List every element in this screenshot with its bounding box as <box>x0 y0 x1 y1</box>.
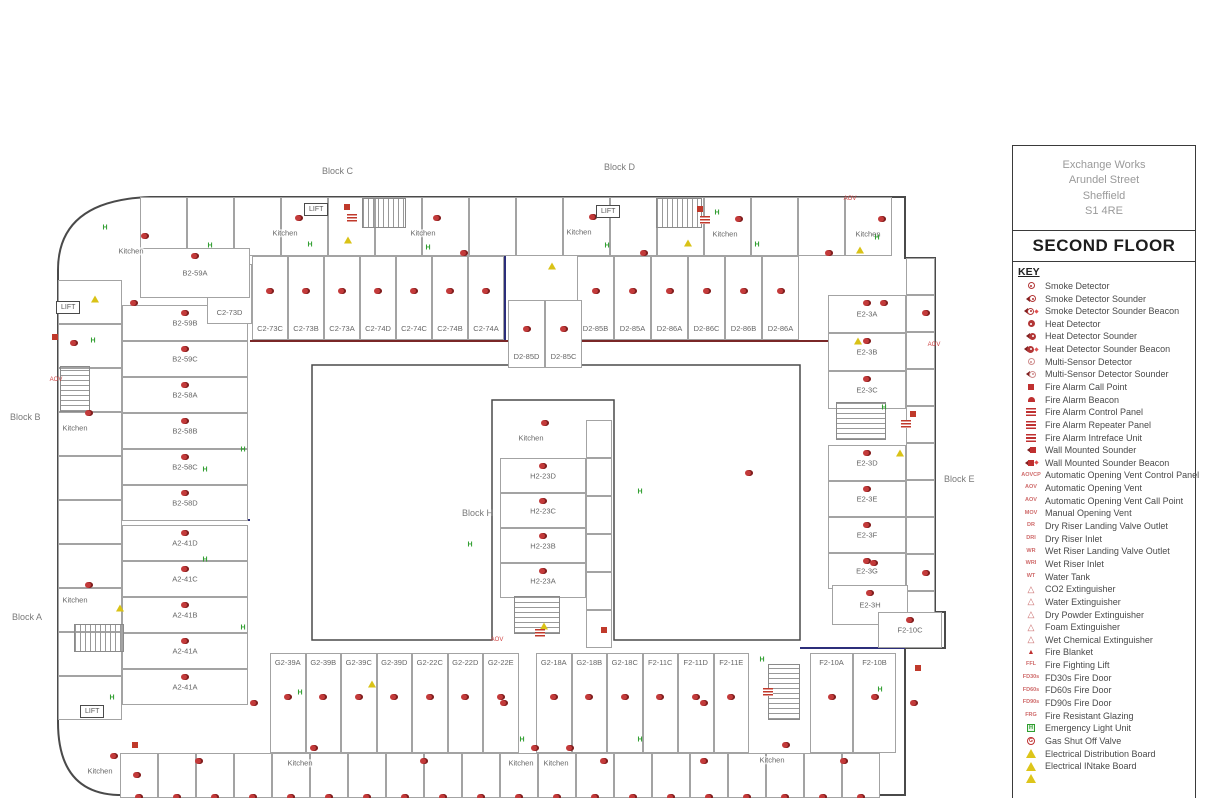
room-F2-11E: F2-11E <box>714 653 750 753</box>
electrical-board-icon <box>548 263 556 270</box>
kitchen-label: Kitchen <box>272 229 297 237</box>
call-point-icon <box>915 665 921 671</box>
kitchen-label: Kitchen <box>712 230 737 238</box>
sounder-icon <box>692 694 700 700</box>
legend-item: DRIDry Riser Inlet <box>1017 532 1195 545</box>
emergency-light-icon: H <box>102 225 107 232</box>
legend-item-label: Foam Extinguisher <box>1045 622 1120 632</box>
sounder-icon <box>433 215 441 221</box>
sounder-icon <box>700 700 708 706</box>
room-label: H2-23A <box>529 577 556 585</box>
electrical-board-icon <box>856 247 864 254</box>
room-label: A2-41D <box>171 539 198 547</box>
room-H2-23B: H2-23B <box>500 528 586 563</box>
sounder-icon <box>110 753 118 759</box>
room-label: D2-85A <box>619 325 646 333</box>
sounder-icon <box>390 694 398 700</box>
sounder-icon <box>863 376 871 382</box>
legend-item: Smoke Detector Sounder <box>1017 292 1195 305</box>
sounder-icon <box>667 794 675 798</box>
room-label: G2-18A <box>540 659 568 667</box>
room-E2-3G: E2-3G <box>828 553 906 589</box>
room-C2-73C: C2-73C <box>252 256 288 340</box>
sounder-icon <box>880 300 888 306</box>
room-label: C2-74A <box>472 325 499 333</box>
lift-label: LIFT <box>80 705 104 718</box>
stairs <box>656 198 702 228</box>
legend-item: FRGFire Resistant Glazing <box>1017 709 1195 722</box>
room-C2-74B: C2-74B <box>432 256 468 340</box>
room-label: E2-3A <box>856 310 879 318</box>
legend-item: FD30sFD30s Fire Door <box>1017 671 1195 684</box>
sounder-icon <box>705 794 713 798</box>
room-label: E2-3D <box>855 459 878 467</box>
room-label: C2-73B <box>292 325 319 333</box>
room-label: D2-85C <box>550 353 578 361</box>
room-label: D2-86C <box>693 325 721 333</box>
room-D2-85C: D2-85C <box>545 300 582 368</box>
sounder-icon <box>743 794 751 798</box>
legend-item-label: Fire Alarm Intreface Unit <box>1045 433 1142 443</box>
address-line: Exchange Works <box>1017 158 1191 173</box>
sounder-icon <box>302 288 310 294</box>
legend-item: Fire Alarm Intreface Unit <box>1017 431 1195 444</box>
room-cell <box>586 534 612 572</box>
legend-item: Wall Mounted Sounder Beacon <box>1017 457 1195 470</box>
sounder-icon <box>863 486 871 492</box>
legend-item-label: Smoke Detector Sounder <box>1045 294 1146 304</box>
legend-gas-icon: G <box>1017 737 1045 745</box>
room-E2-3E: E2-3E <box>828 481 906 517</box>
kitchen-label: Kitchen <box>543 759 568 767</box>
legend-list: Smoke DetectorSmoke Detector SounderSmok… <box>1013 280 1195 786</box>
sounder-icon <box>250 700 258 706</box>
emergency-light-icon: H <box>881 405 886 412</box>
room-B2-59A: B2-59A <box>140 248 250 298</box>
kitchen-label: Kitchen <box>287 759 312 767</box>
room-cell <box>586 572 612 610</box>
legend-item-label: Automatic Opening Vent Control Panel <box>1045 470 1199 480</box>
room-label: C2-73C <box>256 325 284 333</box>
kitchen-label: Kitchen <box>62 424 87 432</box>
room-F2-11C: F2-11C <box>643 653 679 753</box>
room-B2-59C: B2-59C <box>122 341 248 377</box>
kitchen-label: Kitchen <box>87 767 112 775</box>
legend-text-icon: DR <box>1017 523 1045 529</box>
room-label: F2-10B <box>861 659 888 667</box>
room-label: G2-18B <box>575 659 603 667</box>
room-cell <box>704 197 751 256</box>
room-label: B2-58D <box>171 499 198 507</box>
legend-item-label: Multi-Sensor Detector <box>1045 357 1132 367</box>
lift-label: LIFT <box>304 203 328 216</box>
room-label: G2-22E <box>487 659 515 667</box>
legend-item: AOVAutomatic Opening Vent <box>1017 482 1195 495</box>
room-cell <box>804 753 842 798</box>
room-label: G2-22C <box>416 659 444 667</box>
legend-item: △Dry Powder Extinguisher <box>1017 608 1195 621</box>
sounder-icon <box>181 454 189 460</box>
sounder-icon <box>249 794 257 798</box>
kitchen-label: Kitchen <box>759 756 784 764</box>
room-label: A2-41C <box>171 575 198 583</box>
legend-smoke-icon <box>1017 282 1045 289</box>
room-label: F2-10A <box>818 659 845 667</box>
emergency-light-icon: H <box>90 338 95 345</box>
room-label: C2-73A <box>328 325 355 333</box>
sounder-icon <box>325 794 333 798</box>
room-D2-85D: D2-85D <box>508 300 545 368</box>
sounder-icon <box>410 288 418 294</box>
sounder-icon <box>840 758 848 764</box>
room-label: B2-59B <box>171 319 198 327</box>
legend-item: HEmergency Light Unit <box>1017 722 1195 735</box>
legend-item: FD90sFD90s Fire Door <box>1017 697 1195 710</box>
key-heading: KEY <box>1013 262 1195 280</box>
sounder-icon <box>550 694 558 700</box>
sounder-icon <box>735 216 743 222</box>
legend-item: FFLFire Fighting Lift <box>1017 659 1195 672</box>
sounder-icon <box>541 420 549 426</box>
room-label: G2-39C <box>345 659 373 667</box>
sounder-icon <box>319 694 327 700</box>
legend-item-label: Emergency Light Unit <box>1045 723 1131 733</box>
room-F2-10B: F2-10B <box>853 653 896 753</box>
legend-item-label: FD60s Fire Door <box>1045 685 1112 695</box>
legend-item: Smoke Detector Sounder Beacon <box>1017 305 1195 318</box>
emergency-light-icon: H <box>240 447 245 454</box>
room-D2-85A: D2-85A <box>614 256 651 340</box>
room-label: B2-59C <box>171 355 198 363</box>
room-A2-41C: A2-41C <box>122 561 248 597</box>
legend-item: WRWet Riser Landing Valve Outlet <box>1017 545 1195 558</box>
legend-item-label: Smoke Detector Sounder Beacon <box>1045 306 1179 316</box>
sounder-icon <box>857 794 865 798</box>
emergency-light-icon: H <box>240 625 245 632</box>
legend-ext-icon: △ <box>1017 623 1045 632</box>
electrical-board-icon <box>344 237 352 244</box>
room-label: F2-11D <box>683 659 709 667</box>
room-label: E2-3E <box>856 495 879 503</box>
room-cell <box>906 443 935 480</box>
legend-item: AOVCPAutomatic Opening Vent Control Pane… <box>1017 469 1195 482</box>
legend-beacon-icon <box>1017 397 1045 402</box>
sounder-icon <box>181 638 189 644</box>
room-A2-41A: A2-41A <box>122 633 248 669</box>
legend-wall-sounder-beacon-icon <box>1017 460 1045 466</box>
legend-item: Fire Alarm Call Point <box>1017 381 1195 394</box>
legend-item: Fire Alarm Repeater Panel <box>1017 419 1195 432</box>
room-A2-41D: A2-41D <box>122 525 248 561</box>
sounder-icon <box>420 758 428 764</box>
room-label: A2-41A <box>171 647 198 655</box>
room-D2-86A: D2-86A <box>762 256 799 340</box>
legend-smoke-sounder-beacon-icon <box>1017 308 1045 315</box>
sounder-icon <box>828 694 836 700</box>
room-E2-3A: E2-3A <box>828 295 906 333</box>
room-cell <box>234 753 272 798</box>
legend-panel-icon <box>1017 421 1045 429</box>
legend-item: ▲Fire Blanket <box>1017 646 1195 659</box>
legend-wall-sounder-icon <box>1017 447 1045 453</box>
alarm-panel-icon <box>535 629 545 637</box>
legend-item-label: Water Extinguisher <box>1045 597 1121 607</box>
sounder-icon <box>703 288 711 294</box>
legend-item-label: FD30s Fire Door <box>1045 673 1112 683</box>
sounder-icon <box>906 617 914 623</box>
kitchen-label: Kitchen <box>62 596 87 604</box>
room-B2-58A: B2-58A <box>122 377 248 413</box>
room-G2-39A: G2-39A <box>270 653 306 753</box>
sounder-icon <box>284 694 292 700</box>
legend-item: Heat Detector Sounder <box>1017 330 1195 343</box>
sounder-icon <box>870 560 878 566</box>
lift-label: LIFT <box>596 205 620 218</box>
legend-text-icon: FD60s <box>1017 688 1045 694</box>
emergency-light-icon: H <box>109 695 114 702</box>
room-label: A2-41A <box>171 683 198 691</box>
legend-item-label: Heat Detector Sounder <box>1045 331 1137 341</box>
room-label: B2-58A <box>171 391 198 399</box>
emergency-light-icon: H <box>637 489 642 496</box>
legend-item: DRDry Riser Landing Valve Outlet <box>1017 520 1195 533</box>
emergency-light-icon: H <box>519 737 524 744</box>
room-C2-73A: C2-73A <box>324 256 360 340</box>
key-heading-text: KEY <box>1018 266 1040 278</box>
sounder-icon <box>355 694 363 700</box>
room-label: C2-74C <box>400 325 428 333</box>
vent-label: AOV <box>491 637 504 643</box>
emergency-light-icon: H <box>604 243 609 250</box>
emergency-light-icon: H <box>714 210 719 217</box>
legend-item: △Wet Chemical Extinguisher <box>1017 634 1195 647</box>
sounder-icon <box>482 288 490 294</box>
sounder-icon <box>539 498 547 504</box>
block-label: Block D <box>604 162 635 172</box>
legend-ext-icon: △ <box>1017 635 1045 644</box>
sounder-icon <box>863 522 871 528</box>
alarm-panel-icon <box>901 420 911 428</box>
legend-item: WRIWet Riser Inlet <box>1017 558 1195 571</box>
room-label: F2-11C <box>647 659 673 667</box>
emergency-light-icon: H <box>307 242 312 249</box>
legend-item: Multi-Sensor Detector Sounder <box>1017 368 1195 381</box>
emergency-light-icon: H <box>759 657 764 664</box>
legend-item: △Foam Extinguisher <box>1017 621 1195 634</box>
legend-text-icon: AOV <box>1017 498 1045 504</box>
room-B2-58C: B2-58C <box>122 449 248 485</box>
room-D2-86C: D2-86C <box>688 256 725 340</box>
sounder-icon <box>700 758 708 764</box>
room-H2-23D: H2-23D <box>500 458 586 493</box>
legend-item-label: Electrical INtake Board <box>1045 761 1137 771</box>
kitchen-label: Kitchen <box>410 229 435 237</box>
legend-item-label: Fire Fighting Lift <box>1045 660 1110 670</box>
room-label: F2-11E <box>718 659 744 667</box>
room-label: D2-86B <box>730 325 757 333</box>
kitchen-label: Kitchen <box>518 434 543 442</box>
legend-blanket-icon: ▲ <box>1017 649 1045 656</box>
floor-plan-page: C2-73CC2-73BC2-73AC2-74DC2-74CC2-74BC2-7… <box>0 0 1215 798</box>
sounder-icon <box>782 742 790 748</box>
room-cell <box>424 753 462 798</box>
sounder-icon <box>477 794 485 798</box>
room-C2-74D: C2-74D <box>360 256 396 340</box>
electrical-board-icon <box>684 240 692 247</box>
room-G2-18B: G2-18B <box>572 653 608 753</box>
sounder-icon <box>181 346 189 352</box>
room-G2-18A: G2-18A <box>536 653 572 753</box>
legend-multi-icon <box>1017 358 1045 365</box>
legend-item: MOVManual Opening Vent <box>1017 507 1195 520</box>
sounder-icon <box>195 758 203 764</box>
legend-item-label: Dry Riser Inlet <box>1045 534 1102 544</box>
sounder-icon <box>878 216 886 222</box>
room-cell <box>58 324 122 368</box>
room-cell <box>906 480 935 517</box>
sounder-icon <box>70 340 78 346</box>
legend-item-label: Gas Shut Off Valve <box>1045 736 1121 746</box>
legend-item-label: Fire Resistant Glazing <box>1045 711 1134 721</box>
legend-electrical-icon <box>1017 749 1045 758</box>
call-point-icon <box>697 206 703 212</box>
sounder-icon <box>515 794 523 798</box>
stairs <box>836 402 886 440</box>
room-label: H2-23C <box>529 507 557 515</box>
sounder-icon <box>666 288 674 294</box>
call-point-icon <box>601 627 607 633</box>
legend-item-label: Fire Blanket <box>1045 647 1093 657</box>
legend-item-label: Dry Powder Extinguisher <box>1045 610 1144 620</box>
emergency-light-icon: H <box>637 737 642 744</box>
room-cell <box>58 456 122 500</box>
block-label: Block E <box>944 474 975 484</box>
room-B2-58D: B2-58D <box>122 485 248 521</box>
address-line: Arundel Street <box>1017 173 1191 188</box>
emergency-light-icon: H <box>754 242 759 249</box>
sounder-icon <box>863 300 871 306</box>
sounder-icon <box>191 253 199 259</box>
sounder-icon <box>591 794 599 798</box>
room-cell <box>586 496 612 534</box>
sounder-icon <box>560 326 568 332</box>
room-label: F2-10C <box>896 626 923 634</box>
sounder-icon <box>287 794 295 798</box>
floor-title: SECOND FLOOR <box>1013 230 1195 262</box>
legend-item: Heat Detector Sounder Beacon <box>1017 343 1195 356</box>
alarm-panel-icon <box>763 688 773 696</box>
room-G2-22C: G2-22C <box>412 653 448 753</box>
stairs <box>74 624 124 652</box>
call-point-icon <box>52 334 58 340</box>
room-label: C2-73D <box>216 309 244 317</box>
legend-heat-sounder-beacon-icon <box>1017 346 1045 353</box>
room-C2-74C: C2-74C <box>396 256 432 340</box>
room-cell <box>58 500 122 544</box>
room-F2-10A: F2-10A <box>810 653 853 753</box>
legend-heat-sounder-icon <box>1017 333 1045 340</box>
alarm-panel-icon <box>347 214 357 222</box>
room-A2-41B: A2-41B <box>122 597 248 633</box>
sounder-icon <box>130 300 138 306</box>
sounder-icon <box>863 450 871 456</box>
room-label: H2-23B <box>529 542 556 550</box>
sounder-icon <box>181 530 189 536</box>
sounder-icon <box>426 694 434 700</box>
sounder-icon <box>727 694 735 700</box>
room-G2-22D: G2-22D <box>448 653 484 753</box>
sounder-icon <box>539 533 547 539</box>
room-E2-3F: E2-3F <box>828 517 906 553</box>
legend-text-icon: AOV <box>1017 485 1045 491</box>
kitchen-label: Kitchen <box>508 759 533 767</box>
room-label: D2-85D <box>513 353 541 361</box>
emergency-light-icon: H <box>207 243 212 250</box>
legend-item: AOVAutomatic Opening Vent Call Point <box>1017 494 1195 507</box>
legend-text-icon: FFL <box>1017 662 1045 668</box>
room-D2-86A: D2-86A <box>651 256 688 340</box>
electrical-board-icon <box>854 338 862 345</box>
legend-text-icon: DRI <box>1017 536 1045 542</box>
room-label: D2-86A <box>656 325 683 333</box>
room-cell <box>906 295 935 332</box>
room-H2-23C: H2-23C <box>500 493 586 528</box>
sounder-icon <box>460 250 468 256</box>
room-B2-58B: B2-58B <box>122 413 248 449</box>
legend-text-icon: FD90s <box>1017 700 1045 706</box>
legend-item-label: Fire Alarm Call Point <box>1045 382 1127 392</box>
emergency-light-icon: H <box>297 690 302 697</box>
room-F2-10C: F2-10C <box>878 612 942 648</box>
room-label: G2-39B <box>309 659 337 667</box>
legend-item: Electrical Distribution Board <box>1017 747 1195 760</box>
sounder-icon <box>338 288 346 294</box>
vent-label: AOV <box>844 196 857 202</box>
alarm-panel-icon <box>700 216 710 224</box>
sounder-icon <box>629 288 637 294</box>
stairs <box>60 366 90 412</box>
legend-item-label: Multi-Sensor Detector Sounder <box>1045 369 1169 379</box>
room-cell <box>906 332 935 369</box>
legend-item-label: Automatic Opening Vent <box>1045 483 1142 493</box>
room-label: E2-3C <box>855 386 878 394</box>
room-cell <box>690 753 728 798</box>
legend-text-icon: AOVCP <box>1017 473 1045 479</box>
room-label: G2-22D <box>451 659 479 667</box>
room-label: E2-3H <box>858 601 881 609</box>
sounder-icon <box>310 745 318 751</box>
sounder-icon <box>629 794 637 798</box>
legend-panel-icon <box>1017 408 1045 416</box>
sounder-icon <box>621 694 629 700</box>
sounder-icon <box>363 794 371 798</box>
sounder-icon <box>85 410 93 416</box>
room-label: B2-59A <box>181 269 208 277</box>
room-cell <box>310 753 348 798</box>
sounder-icon <box>656 694 664 700</box>
address-line: Sheffield <box>1017 189 1191 204</box>
sounder-icon <box>585 694 593 700</box>
sounder-icon <box>181 418 189 424</box>
room-label: D2-85B <box>582 325 609 333</box>
legend-item-label: Heat Detector <box>1045 319 1101 329</box>
room-label: C2-74B <box>436 325 463 333</box>
legend-item-label: Heat Detector Sounder Beacon <box>1045 344 1170 354</box>
legend-item: GGas Shut Off Valve <box>1017 735 1195 748</box>
room-label: G2-18C <box>611 659 639 667</box>
room-cell <box>586 458 612 496</box>
legend-item: Wall Mounted Sounder <box>1017 444 1195 457</box>
